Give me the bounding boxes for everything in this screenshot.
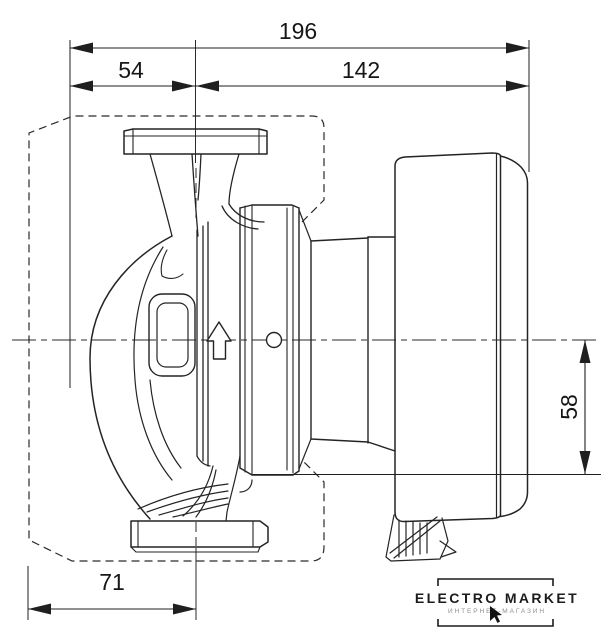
bracket-frame-top — [438, 579, 553, 586]
arrowhead — [580, 451, 591, 474]
dim-71-label: 71 — [99, 569, 125, 595]
intermediate-cylinder — [311, 237, 395, 451]
arrowhead — [196, 81, 219, 92]
dimension-labels: 196 54 142 71 58 — [99, 18, 582, 595]
centerlines — [12, 40, 601, 620]
arrowhead — [173, 604, 196, 615]
arrowhead — [506, 81, 529, 92]
arrowhead — [580, 340, 591, 363]
arrowhead — [172, 81, 195, 92]
dimension-arrowheads — [28, 43, 591, 615]
extension-lines — [28, 40, 601, 620]
dim-54-label: 54 — [118, 57, 144, 83]
arrowhead — [70, 43, 93, 54]
brand-text: ELECTRO MARKET — [415, 590, 579, 606]
flow-direction-arrow-icon — [207, 322, 231, 359]
dimension-lines — [28, 48, 585, 609]
volute-boss-inner — [157, 303, 188, 367]
motor-housing — [386, 153, 528, 561]
drawing-canvas: 196 54 142 71 58 — [0, 0, 616, 640]
bracket-frame-bottom — [438, 619, 553, 626]
motor-fins — [386, 515, 456, 561]
motor-outline — [395, 153, 501, 522]
lower-ribs — [138, 456, 252, 521]
housing-plates — [197, 222, 210, 466]
arrowhead — [506, 43, 529, 54]
dim-142-label: 142 — [342, 57, 380, 83]
bottom-flange — [131, 521, 268, 552]
arrowhead — [70, 81, 93, 92]
center-mark-circle — [267, 333, 282, 348]
motor-end-cap — [501, 156, 528, 517]
dim-196-label: 196 — [279, 18, 317, 44]
volute-casing — [90, 236, 195, 519]
arrowhead — [28, 604, 51, 615]
watermark-logo: ELECTRO MARKET ИНТЕРНЕТ-МАГАЗИН — [415, 579, 579, 626]
dim-58-label: 58 — [556, 394, 582, 420]
suction-neck — [150, 154, 264, 236]
pump-technical-drawing: 196 54 142 71 58 — [0, 0, 616, 640]
